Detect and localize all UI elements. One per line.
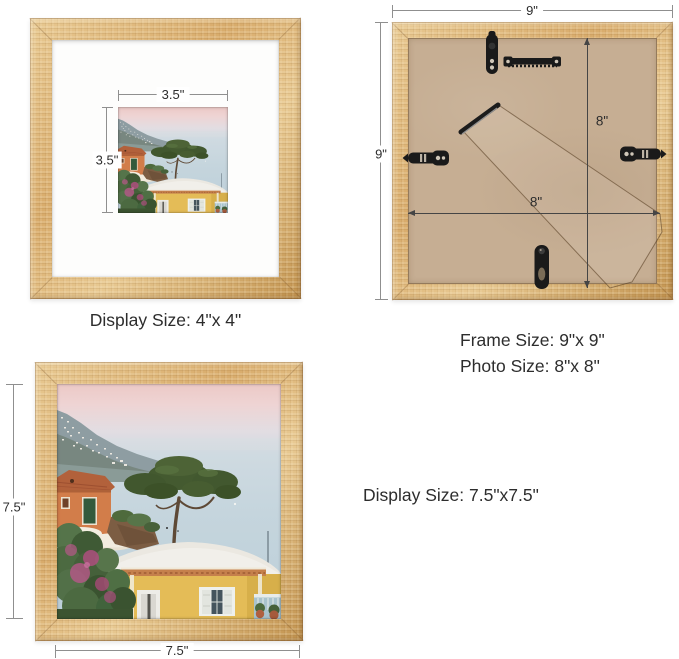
frame-size-diagram: 3.5" 3.5" Display Size: 4"x 4" (0, 0, 679, 659)
tick (299, 645, 300, 658)
tick (6, 384, 23, 385)
dimension-display-height: 7.5" (13, 384, 14, 619)
picture-frame-back (392, 22, 673, 300)
picture-frame-matted (30, 18, 301, 299)
miter-joint (34, 362, 57, 385)
dimension-opening-width (408, 213, 660, 214)
miter-joint (278, 17, 301, 40)
dimension-label: 9" (372, 146, 390, 163)
miter-joint (656, 21, 673, 38)
tick (392, 5, 393, 18)
tick (6, 618, 23, 619)
dimension-label: 9" (521, 3, 543, 18)
dimension-label: 8" (530, 195, 542, 210)
tick (55, 645, 56, 658)
dimension-opening-height (587, 38, 588, 288)
tick (672, 5, 673, 18)
miter-joint (392, 284, 409, 301)
dimension-label: 3.5" (93, 152, 122, 169)
tick (375, 299, 388, 300)
tick (375, 22, 388, 23)
dimension-photo-width: 3.5" (118, 94, 228, 95)
tick (102, 107, 113, 108)
miter-joint (280, 361, 303, 384)
dimension-label: 3.5" (157, 87, 190, 102)
backboard (408, 38, 657, 284)
miter-joint (391, 22, 408, 39)
tick (227, 90, 228, 101)
miter-joint (279, 276, 302, 299)
dimension-label: 7.5" (0, 499, 28, 516)
miter-joint (657, 283, 674, 300)
dimension-label: 8" (596, 114, 608, 129)
display-size-caption: Display Size: 4"x 4" (30, 310, 301, 331)
dimension-frame-height: 9" (380, 22, 381, 300)
picture-frame-full (35, 362, 303, 641)
miter-joint (29, 18, 52, 41)
dimension-frame-width: 9" (392, 10, 673, 11)
frame-size-caption: Frame Size: 9"x 9" (460, 330, 605, 351)
matted-photo (118, 107, 228, 213)
dimension-display-width: 7.5" (55, 650, 300, 651)
miter-joint (281, 618, 304, 641)
display-size-caption-large: Display Size: 7.5"x7.5" (363, 485, 539, 506)
miter-joint (30, 277, 53, 300)
tick (102, 212, 113, 213)
tick (118, 90, 119, 101)
photo-size-caption: Photo Size: 8"x 8" (460, 356, 600, 377)
dimension-photo-height: 3.5" (106, 107, 107, 213)
full-bleed-photo (57, 384, 281, 619)
dimension-label: 7.5" (161, 643, 194, 658)
miter-joint (35, 619, 58, 642)
